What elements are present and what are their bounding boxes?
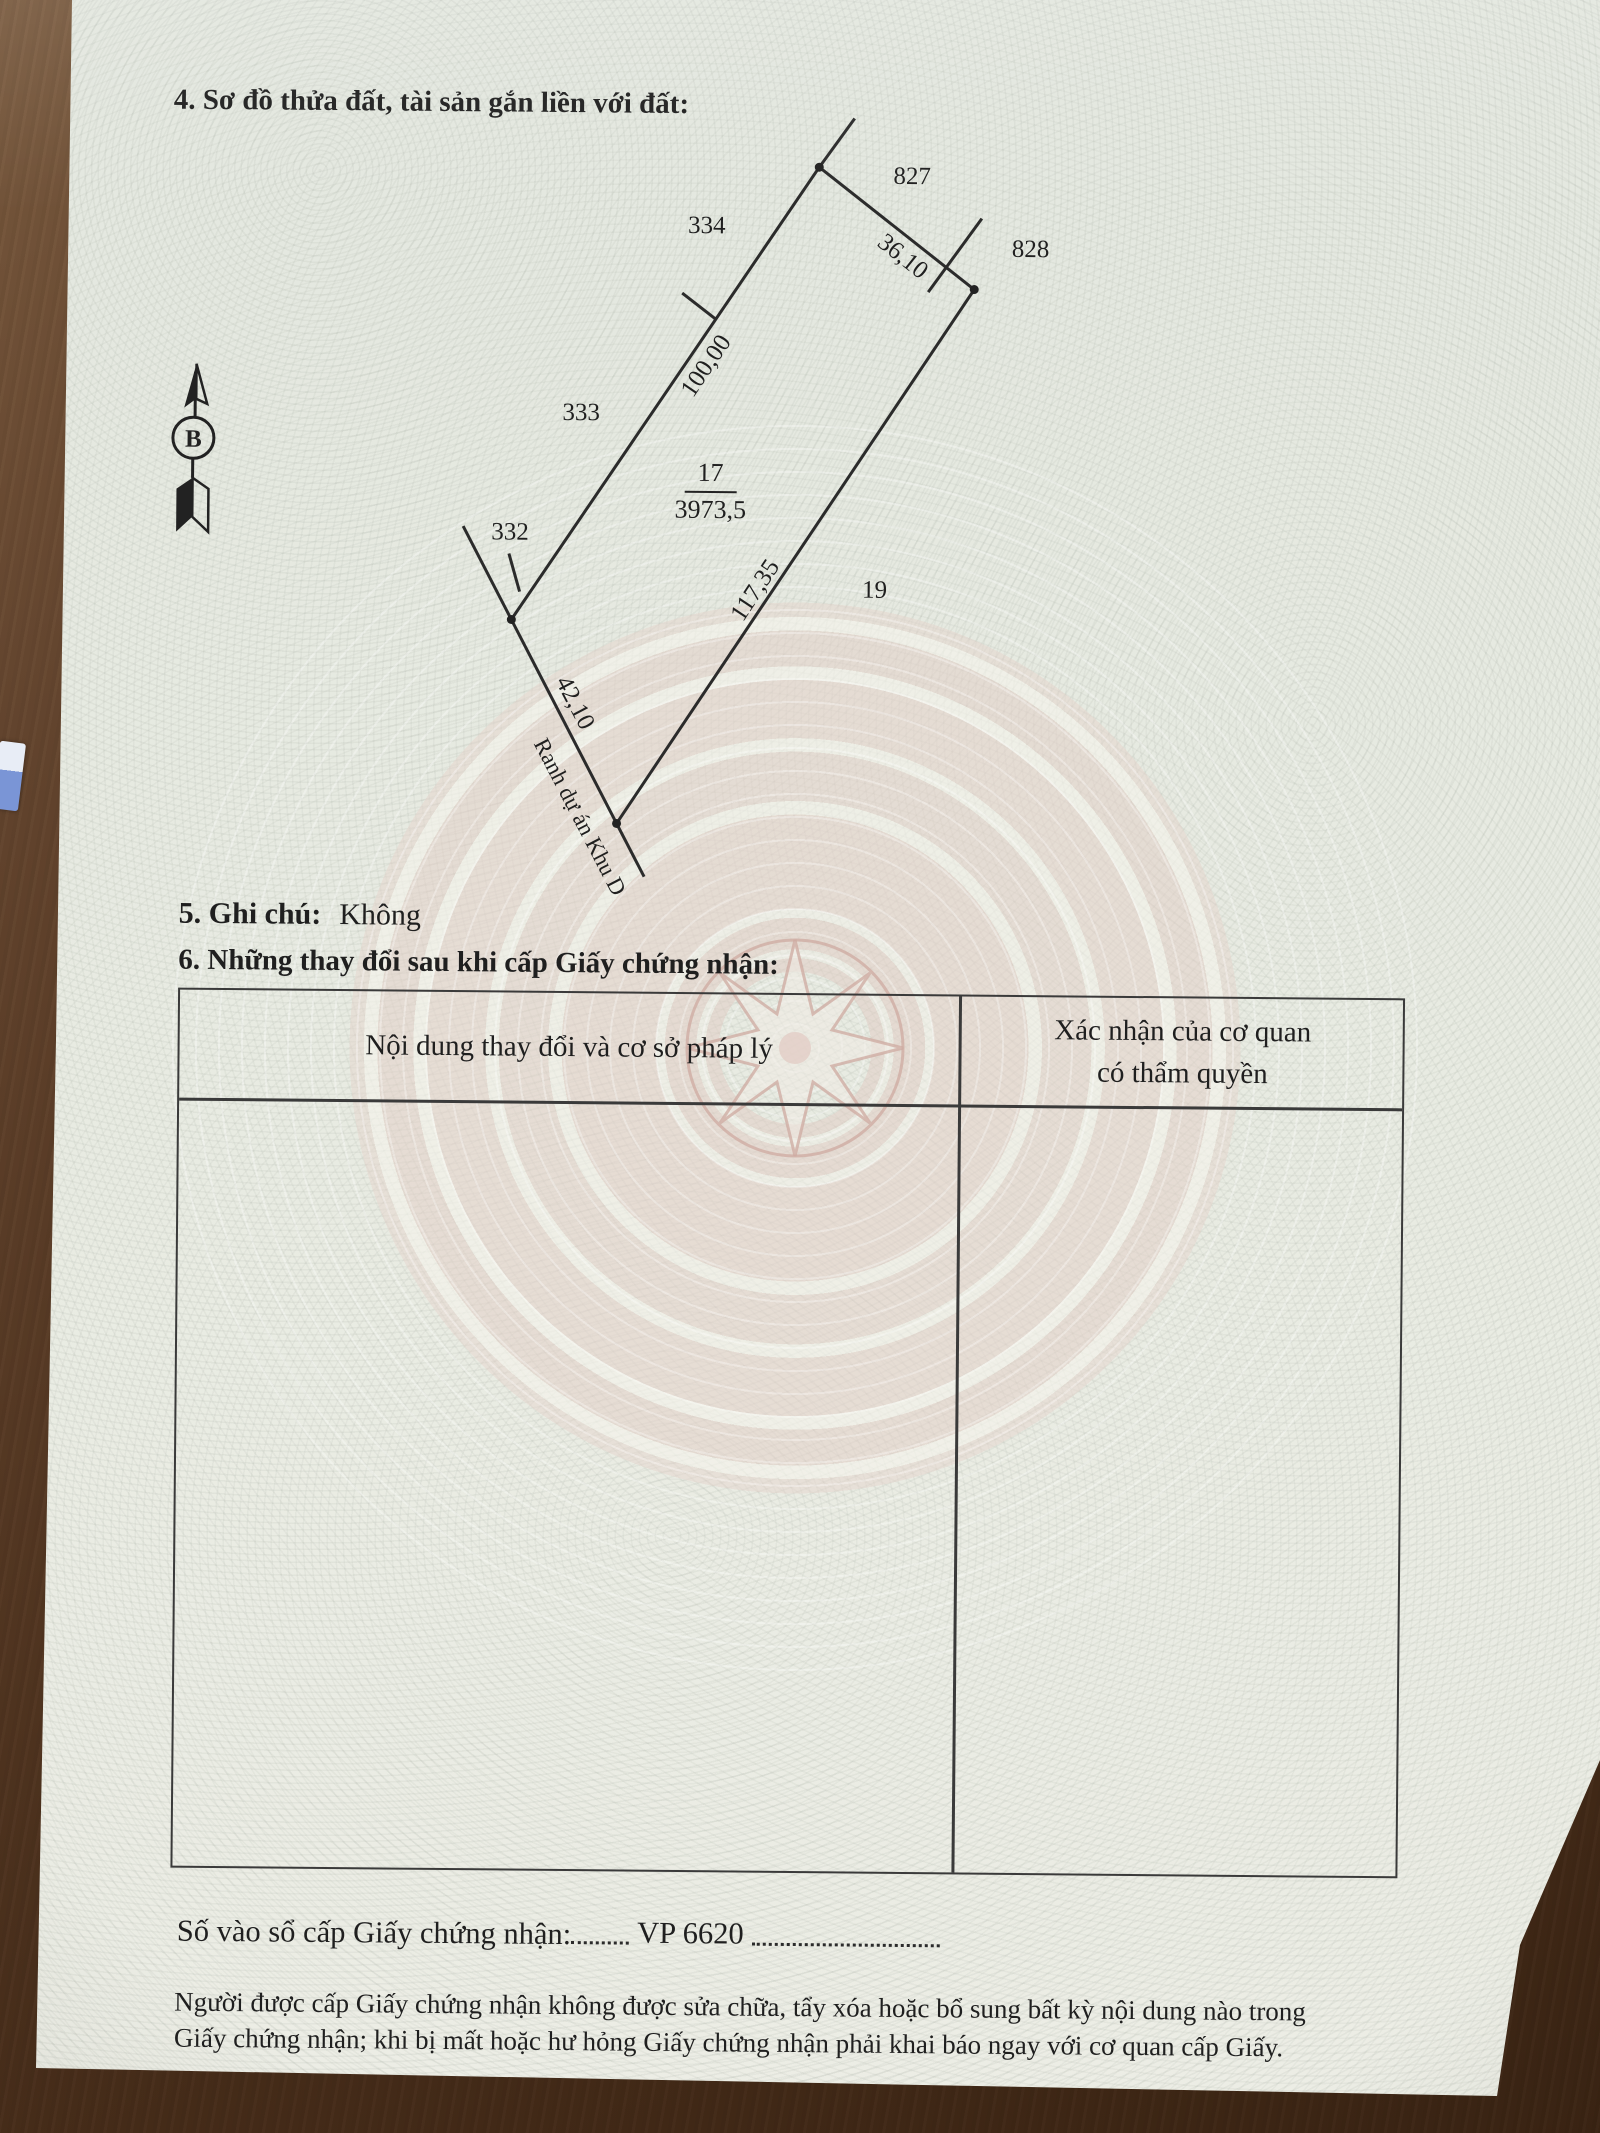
neighbor-parcel-332: 332 — [491, 518, 529, 546]
neighbor-parcel-333: 333 — [562, 399, 600, 427]
page-content: 4. Sơ đồ thửa đất, tài sản gắn liền với … — [0, 0, 1600, 2133]
tick-between-827-828 — [928, 218, 982, 292]
changes-table: Nội dung thay đổi và cơ sở pháp lý Xác n… — [170, 988, 1405, 1879]
leader-line-332 — [509, 554, 520, 592]
table-column-divider — [951, 996, 961, 1872]
north-label: B — [185, 426, 202, 453]
section5-value: Không — [339, 898, 421, 932]
neighbor-parcel-828: 828 — [1012, 236, 1050, 264]
north-arrow-icon: B — [172, 364, 214, 532]
parcel-area: 3973,5 — [674, 492, 746, 526]
blue-sticker — [0, 741, 26, 812]
parcel-number-and-area: 17 3973,5 — [674, 456, 746, 527]
dotted-leader — [752, 1916, 940, 1948]
section5-note: 5. Ghi chú:Không — [179, 897, 421, 933]
tick-between-334-333 — [682, 293, 716, 319]
section6-title: 6. Những thay đổi sau khi cấp Giấy chứng… — [178, 944, 779, 982]
table-header-authority-line2: có thẩm quyền — [1097, 1052, 1268, 1096]
table-header-authority-line1: Xác nhận của cơ quan — [1054, 1009, 1311, 1053]
table-header-authority: Xác nhận của cơ quan có thẩm quyền — [960, 996, 1405, 1108]
dotted-leader — [571, 1914, 629, 1945]
serial-label: Số vào sổ cấp Giấy chứng nhận: — [177, 1914, 572, 1951]
serial-value: VP 6620 — [629, 1916, 752, 1952]
photo-of-land-certificate: 4. Sơ đồ thửa đất, tài sản gắn liền với … — [0, 0, 1600, 2133]
footer-warning: Người được cấp Giấy chứng nhận không đượ… — [174, 1985, 1453, 2068]
table-header-content: Nội dung thay đổi và cơ sở pháp lý — [179, 990, 959, 1105]
neighbor-parcel-334: 334 — [688, 212, 726, 240]
neighbor-parcel-827: 827 — [893, 163, 931, 191]
tick-at-vertex-827 — [819, 118, 854, 167]
parcel-number: 17 — [684, 456, 736, 493]
serial-number-line: Số vào sổ cấp Giấy chứng nhận:VP 6620 — [177, 1911, 940, 1956]
neighbor-parcel-19: 19 — [862, 577, 887, 605]
section5-label: 5. Ghi chú: — [179, 897, 322, 931]
certificate-paper: 4. Sơ đồ thửa đất, tài sản gắn liền với … — [0, 0, 1600, 2133]
